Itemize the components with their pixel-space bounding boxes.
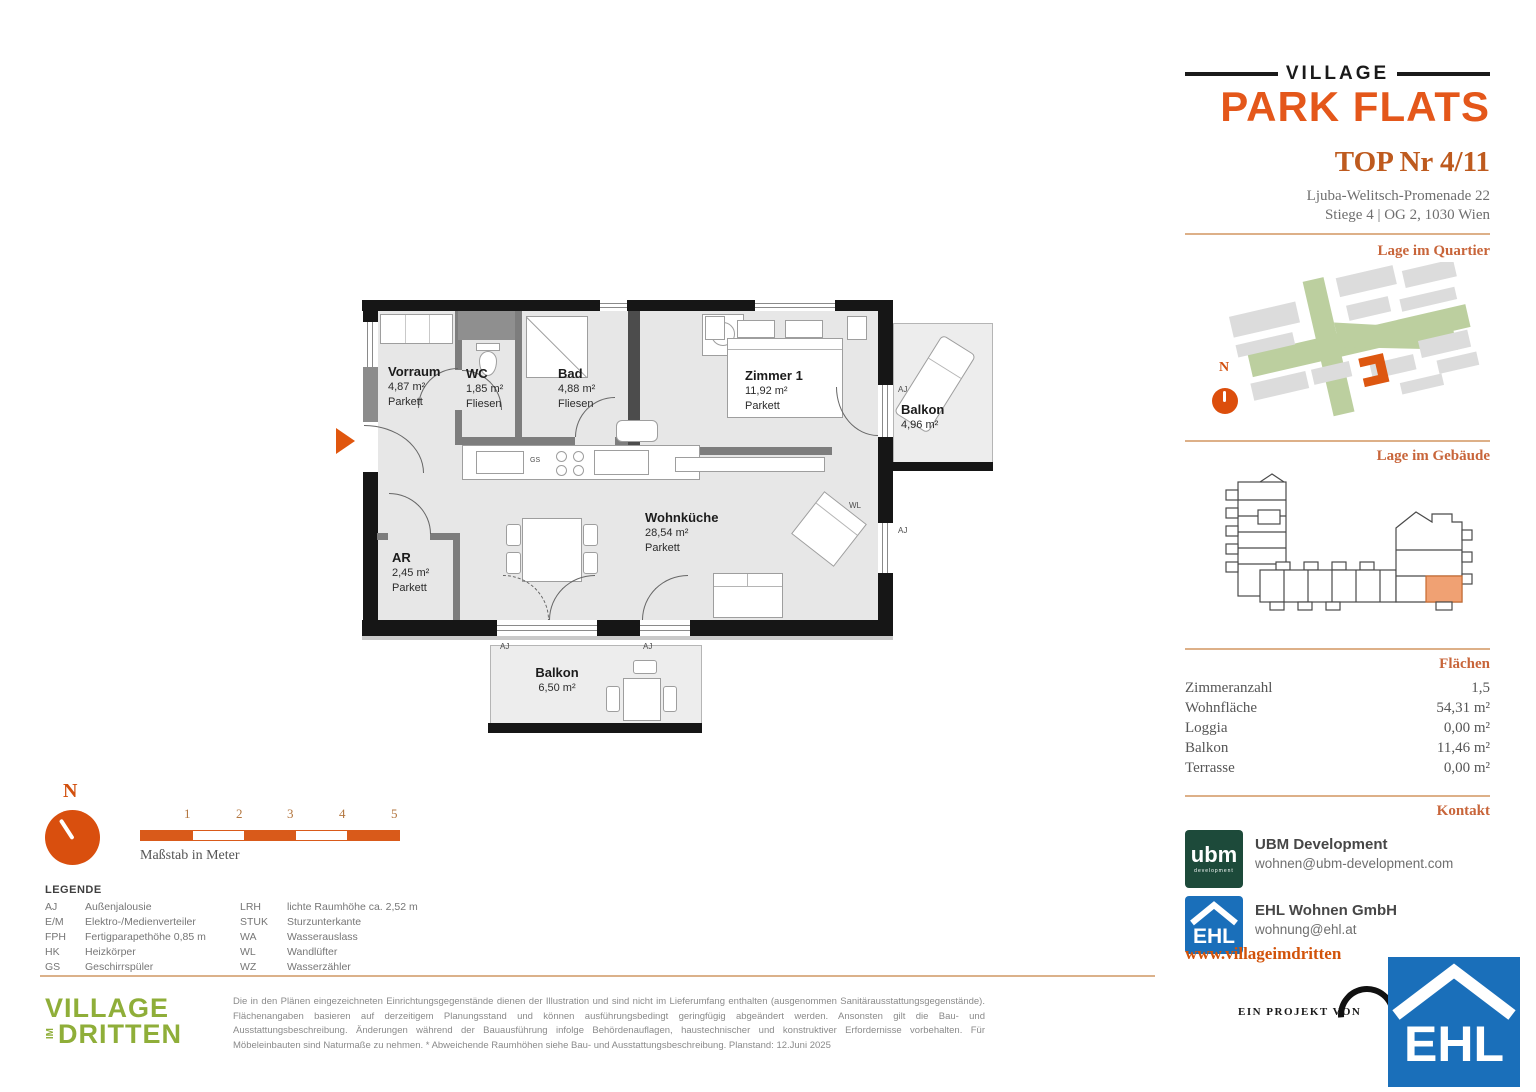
pillow — [737, 320, 775, 338]
floorplan: GS Vorraum 4,87 m² Parkett WC 1,85 m² Fl… — [330, 290, 1040, 760]
legend-text: Wasserauslass — [287, 931, 358, 943]
sofa — [713, 573, 783, 618]
svg-text:EHL: EHL — [1404, 1016, 1504, 1072]
chair — [583, 552, 598, 574]
area-row: Terrasse0,00 m² — [1185, 760, 1490, 777]
room-label-vorraum: Vorraum 4,87 m² Parkett — [388, 364, 441, 410]
divider — [1185, 440, 1490, 442]
scale-tick: 2 — [236, 806, 243, 822]
highlighted-unit — [1426, 576, 1462, 602]
legend-abbr: WL — [240, 946, 256, 958]
nightstand — [705, 316, 725, 340]
sideboard — [675, 457, 825, 472]
room-label-ar: AR 2,45 m² Parkett — [392, 550, 429, 596]
legend-abbr: AJ — [45, 901, 57, 913]
burner — [556, 465, 567, 476]
room-label-wohnkueche: Wohnküche 28,54 m² Parkett — [645, 510, 718, 556]
area-row: Zimmeranzahl1,5 — [1185, 680, 1490, 697]
unit-title: TOP Nr 4/11 — [1185, 146, 1490, 179]
room-label-balkon-east: Balkon 4,96 m² — [901, 402, 944, 433]
legend-abbr: WA — [240, 931, 257, 943]
toilet — [476, 343, 500, 351]
brand-line-right — [1397, 72, 1490, 76]
legend-title: LEGENDE — [45, 884, 102, 896]
chair — [506, 524, 521, 546]
legend-abbr: STUK — [240, 916, 268, 928]
room-label-bad: Bad 4,88 m² Fliesen — [558, 366, 595, 412]
quartier-map — [1205, 262, 1505, 432]
scale-tick: 5 — [391, 806, 398, 822]
aj-tag: AJ — [898, 526, 907, 535]
area-label: Balkon — [1185, 740, 1228, 757]
footer-divider — [40, 975, 1155, 977]
area-value: 1,5 — [1471, 680, 1490, 697]
legend-text: lichte Raumhöhe ca. 2,52 m — [287, 901, 418, 913]
compass-north-label-sidebar: N — [1219, 360, 1229, 376]
aj-tag: AJ — [643, 642, 652, 651]
area-row: Balkon11,46 m² — [1185, 740, 1490, 757]
legend-abbr: FPH — [45, 931, 66, 943]
section-title-kontakt: Kontakt — [1185, 803, 1490, 820]
legend-text: Sturzunterkante — [287, 916, 361, 928]
building-map — [1200, 470, 1490, 630]
legend-text: Geschirrspüler — [85, 961, 153, 973]
area-value: 0,00 m² — [1444, 760, 1490, 777]
gs-tag: GS — [530, 456, 540, 465]
brand-line-left — [1185, 72, 1278, 76]
legend-abbr: E/M — [45, 916, 64, 928]
oven — [594, 450, 649, 475]
brand-top: VILLAGE — [1286, 63, 1389, 85]
window-west — [363, 322, 378, 367]
contact-name-ehl: EHL Wohnen GmbH — [1255, 902, 1397, 919]
balcony-chair — [606, 686, 620, 712]
contact-email-ubm[interactable]: wohnen@ubm-development.com — [1255, 856, 1453, 871]
bathroom-sink — [616, 420, 658, 442]
chair — [583, 524, 598, 546]
ehl-logo-large: EHL — [1388, 957, 1520, 1087]
area-label: Zimmeranzahl — [1185, 680, 1272, 697]
area-value: 0,00 m² — [1444, 720, 1490, 737]
burner — [573, 451, 584, 462]
brand-village-row: VILLAGE — [1185, 64, 1490, 84]
legend-text: Außenjalousie — [85, 901, 152, 913]
aj-tag: AJ — [898, 385, 907, 394]
room-label-wc: WC 1,85 m² Fliesen — [466, 366, 503, 412]
area-row: Wohnfläche54,31 m² — [1185, 700, 1490, 717]
room-label-zimmer1: Zimmer 1 11,92 m² Parkett — [745, 368, 803, 414]
balcony-east-door — [878, 385, 893, 437]
brand-main: PARK FLATS — [1185, 86, 1490, 128]
legend-text: Wasserzähler — [287, 961, 351, 973]
legend-text: Heizkörper — [85, 946, 136, 958]
chair — [506, 552, 521, 574]
scale-tick: 4 — [339, 806, 346, 822]
dining-table — [522, 518, 582, 582]
address-line1: Ljuba-Welitsch-Promenade 22 — [1185, 188, 1490, 205]
aj-tag: AJ — [500, 642, 509, 651]
divider — [1185, 648, 1490, 650]
compass-icon-sidebar — [1212, 388, 1238, 414]
entrance-arrow-icon — [336, 428, 355, 454]
legend-abbr: GS — [45, 961, 60, 973]
balcony-south-door — [640, 620, 690, 636]
legend-abbr: WZ — [240, 961, 256, 973]
ubm-logo: ubm development — [1185, 830, 1243, 888]
wl-tag: WL — [849, 501, 861, 510]
balcony-chair — [663, 686, 677, 712]
legend-text: Elektro-/Medienverteiler — [85, 916, 196, 928]
scale-caption: Maßstab in Meter — [140, 848, 240, 864]
compass-icon — [45, 810, 100, 865]
area-label: Wohnfläche — [1185, 700, 1257, 717]
burner — [573, 465, 584, 476]
legend-abbr: HK — [45, 946, 60, 958]
area-value: 11,46 m² — [1437, 740, 1490, 757]
area-label: Terrasse — [1185, 760, 1235, 777]
burner — [556, 451, 567, 462]
scale-bar — [140, 830, 400, 841]
floorplan-sheet: { "header": { "brand_top": "VILLAGE", "b… — [0, 0, 1536, 1087]
contact-name-ubm: UBM Development — [1255, 836, 1388, 853]
address-line2: Stiege 4 | OG 2, 1030 Wien — [1185, 207, 1490, 224]
room-label-balkon-south: Balkon 6,50 m² — [512, 665, 602, 696]
window-north — [755, 300, 835, 311]
wall-east — [878, 311, 893, 636]
area-row: Loggia0,00 m² — [1185, 720, 1490, 737]
nightstand — [847, 316, 867, 340]
contact-email-ehl[interactable]: wohnung@ehl.at — [1255, 922, 1357, 937]
legend-text: Wandlüfter — [287, 946, 337, 958]
pillow — [785, 320, 823, 338]
legend-abbr: LRH — [240, 901, 261, 913]
balcony-table — [623, 678, 661, 721]
kitchen-sink — [476, 451, 524, 474]
section-title-quartier: Lage im Quartier — [1185, 243, 1490, 260]
balcony-south-door-double — [497, 620, 597, 636]
area-value: 54,31 m² — [1436, 700, 1490, 717]
compass-north-label: N — [63, 780, 77, 803]
section-title-flaechen: Flächen — [1185, 656, 1490, 673]
wardrobe — [380, 314, 453, 344]
section-title-gebaeude: Lage im Gebäude — [1185, 448, 1490, 465]
area-label: Loggia — [1185, 720, 1228, 737]
disclaimer-text: Die in den Plänen eingezeichneten Einric… — [233, 995, 985, 1054]
window-east — [878, 523, 893, 573]
village-im-dritten-logo: VILLAGE IM DRITTEN — [45, 995, 182, 1047]
scale-tick: 1 — [184, 806, 191, 822]
divider — [1185, 795, 1490, 797]
wall-south — [362, 620, 893, 636]
balcony-chair — [633, 660, 657, 674]
legend-text: Fertigparapethöhe 0,85 m — [85, 931, 206, 943]
shaft — [458, 311, 515, 340]
website-link[interactable]: www.villageimdritten — [1185, 944, 1341, 964]
scale-tick: 3 — [287, 806, 294, 822]
divider — [1185, 233, 1490, 235]
